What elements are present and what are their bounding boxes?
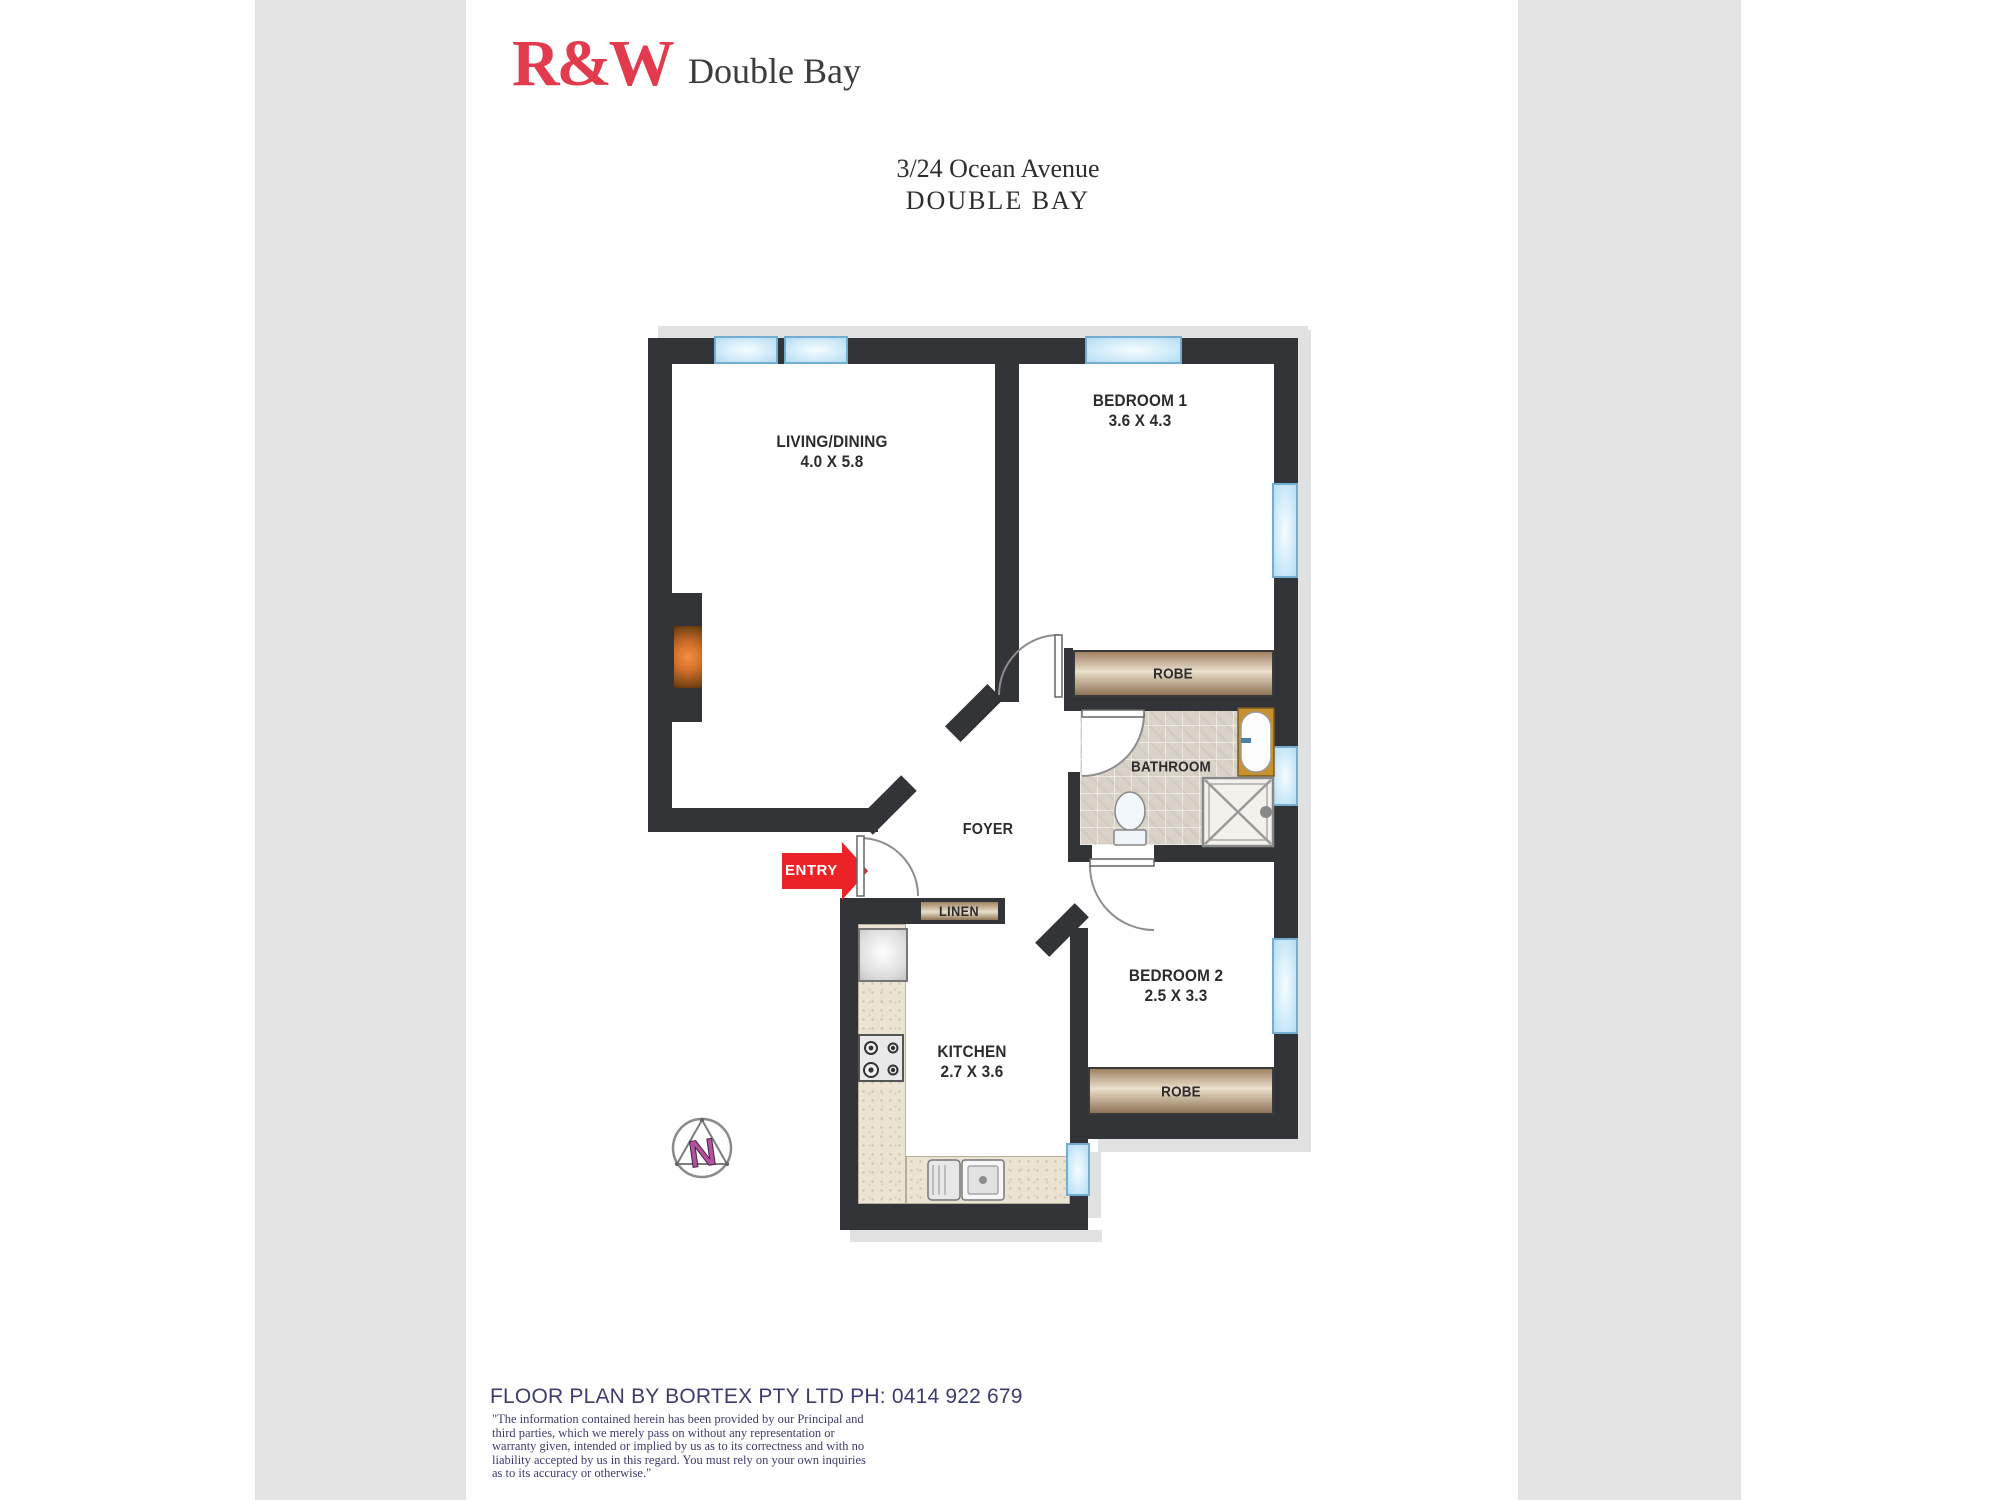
bathroom-door-leaf — [1082, 710, 1144, 717]
stove-burners-icon — [864, 1042, 898, 1077]
label-linen: LINEN — [939, 901, 979, 921]
label-bedroom2: BEDROOM 2 2.5 X 3.3 — [1129, 966, 1223, 1006]
bedroom2-door-arc — [1090, 866, 1154, 930]
bath-tap-icon — [1241, 738, 1251, 743]
floorplan-credit: FLOOR PLAN BY BORTEX PTY LTD PH: 0414 92… — [490, 1385, 1023, 1409]
bedroom1-door-leaf — [1055, 635, 1062, 697]
toilet-bowl-icon — [1115, 792, 1145, 830]
kitchen-name: KITCHEN — [937, 1042, 1006, 1061]
disclaimer-text: "The information contained herein has be… — [492, 1413, 874, 1481]
living-dims: 4.0 X 5.8 — [801, 452, 864, 471]
label-robe2: ROBE — [1161, 1084, 1201, 1101]
page: { "header": { "logo_text": "R&W", "offic… — [0, 0, 2000, 1500]
plan-overlay: N — [0, 0, 2000, 1500]
toilet-tank-icon — [1114, 830, 1146, 845]
label-robe1: ROBE — [1153, 666, 1193, 683]
bedroom2-dims: 2.5 X 3.3 — [1145, 986, 1208, 1005]
label-foyer: FOYER — [963, 820, 1014, 840]
bedroom1-name: BEDROOM 1 — [1093, 391, 1187, 410]
bedroom2-name: BEDROOM 2 — [1129, 966, 1223, 985]
label-bedroom1: BEDROOM 1 3.6 X 4.3 — [1093, 391, 1187, 431]
north-symbol-icon: N — [673, 1118, 731, 1177]
north-letter: N — [686, 1131, 719, 1176]
entry-door-arc — [860, 838, 918, 896]
entry-door-leaf — [857, 836, 864, 896]
label-living: LIVING/DINING 4.0 X 5.8 — [776, 432, 887, 472]
shower-head-icon — [1260, 806, 1272, 818]
bedroom1-door-arc — [999, 635, 1059, 695]
sink-drain-icon — [979, 1176, 987, 1184]
label-bathroom: BATHROOM — [1131, 759, 1211, 776]
bedroom2-door-leaf — [1090, 859, 1154, 866]
bedroom1-dims: 3.6 X 4.3 — [1109, 411, 1172, 430]
kitchen-dims: 2.7 X 3.6 — [941, 1062, 1004, 1081]
label-kitchen: KITCHEN 2.7 X 3.6 — [937, 1042, 1006, 1082]
living-name: LIVING/DINING — [776, 432, 887, 451]
